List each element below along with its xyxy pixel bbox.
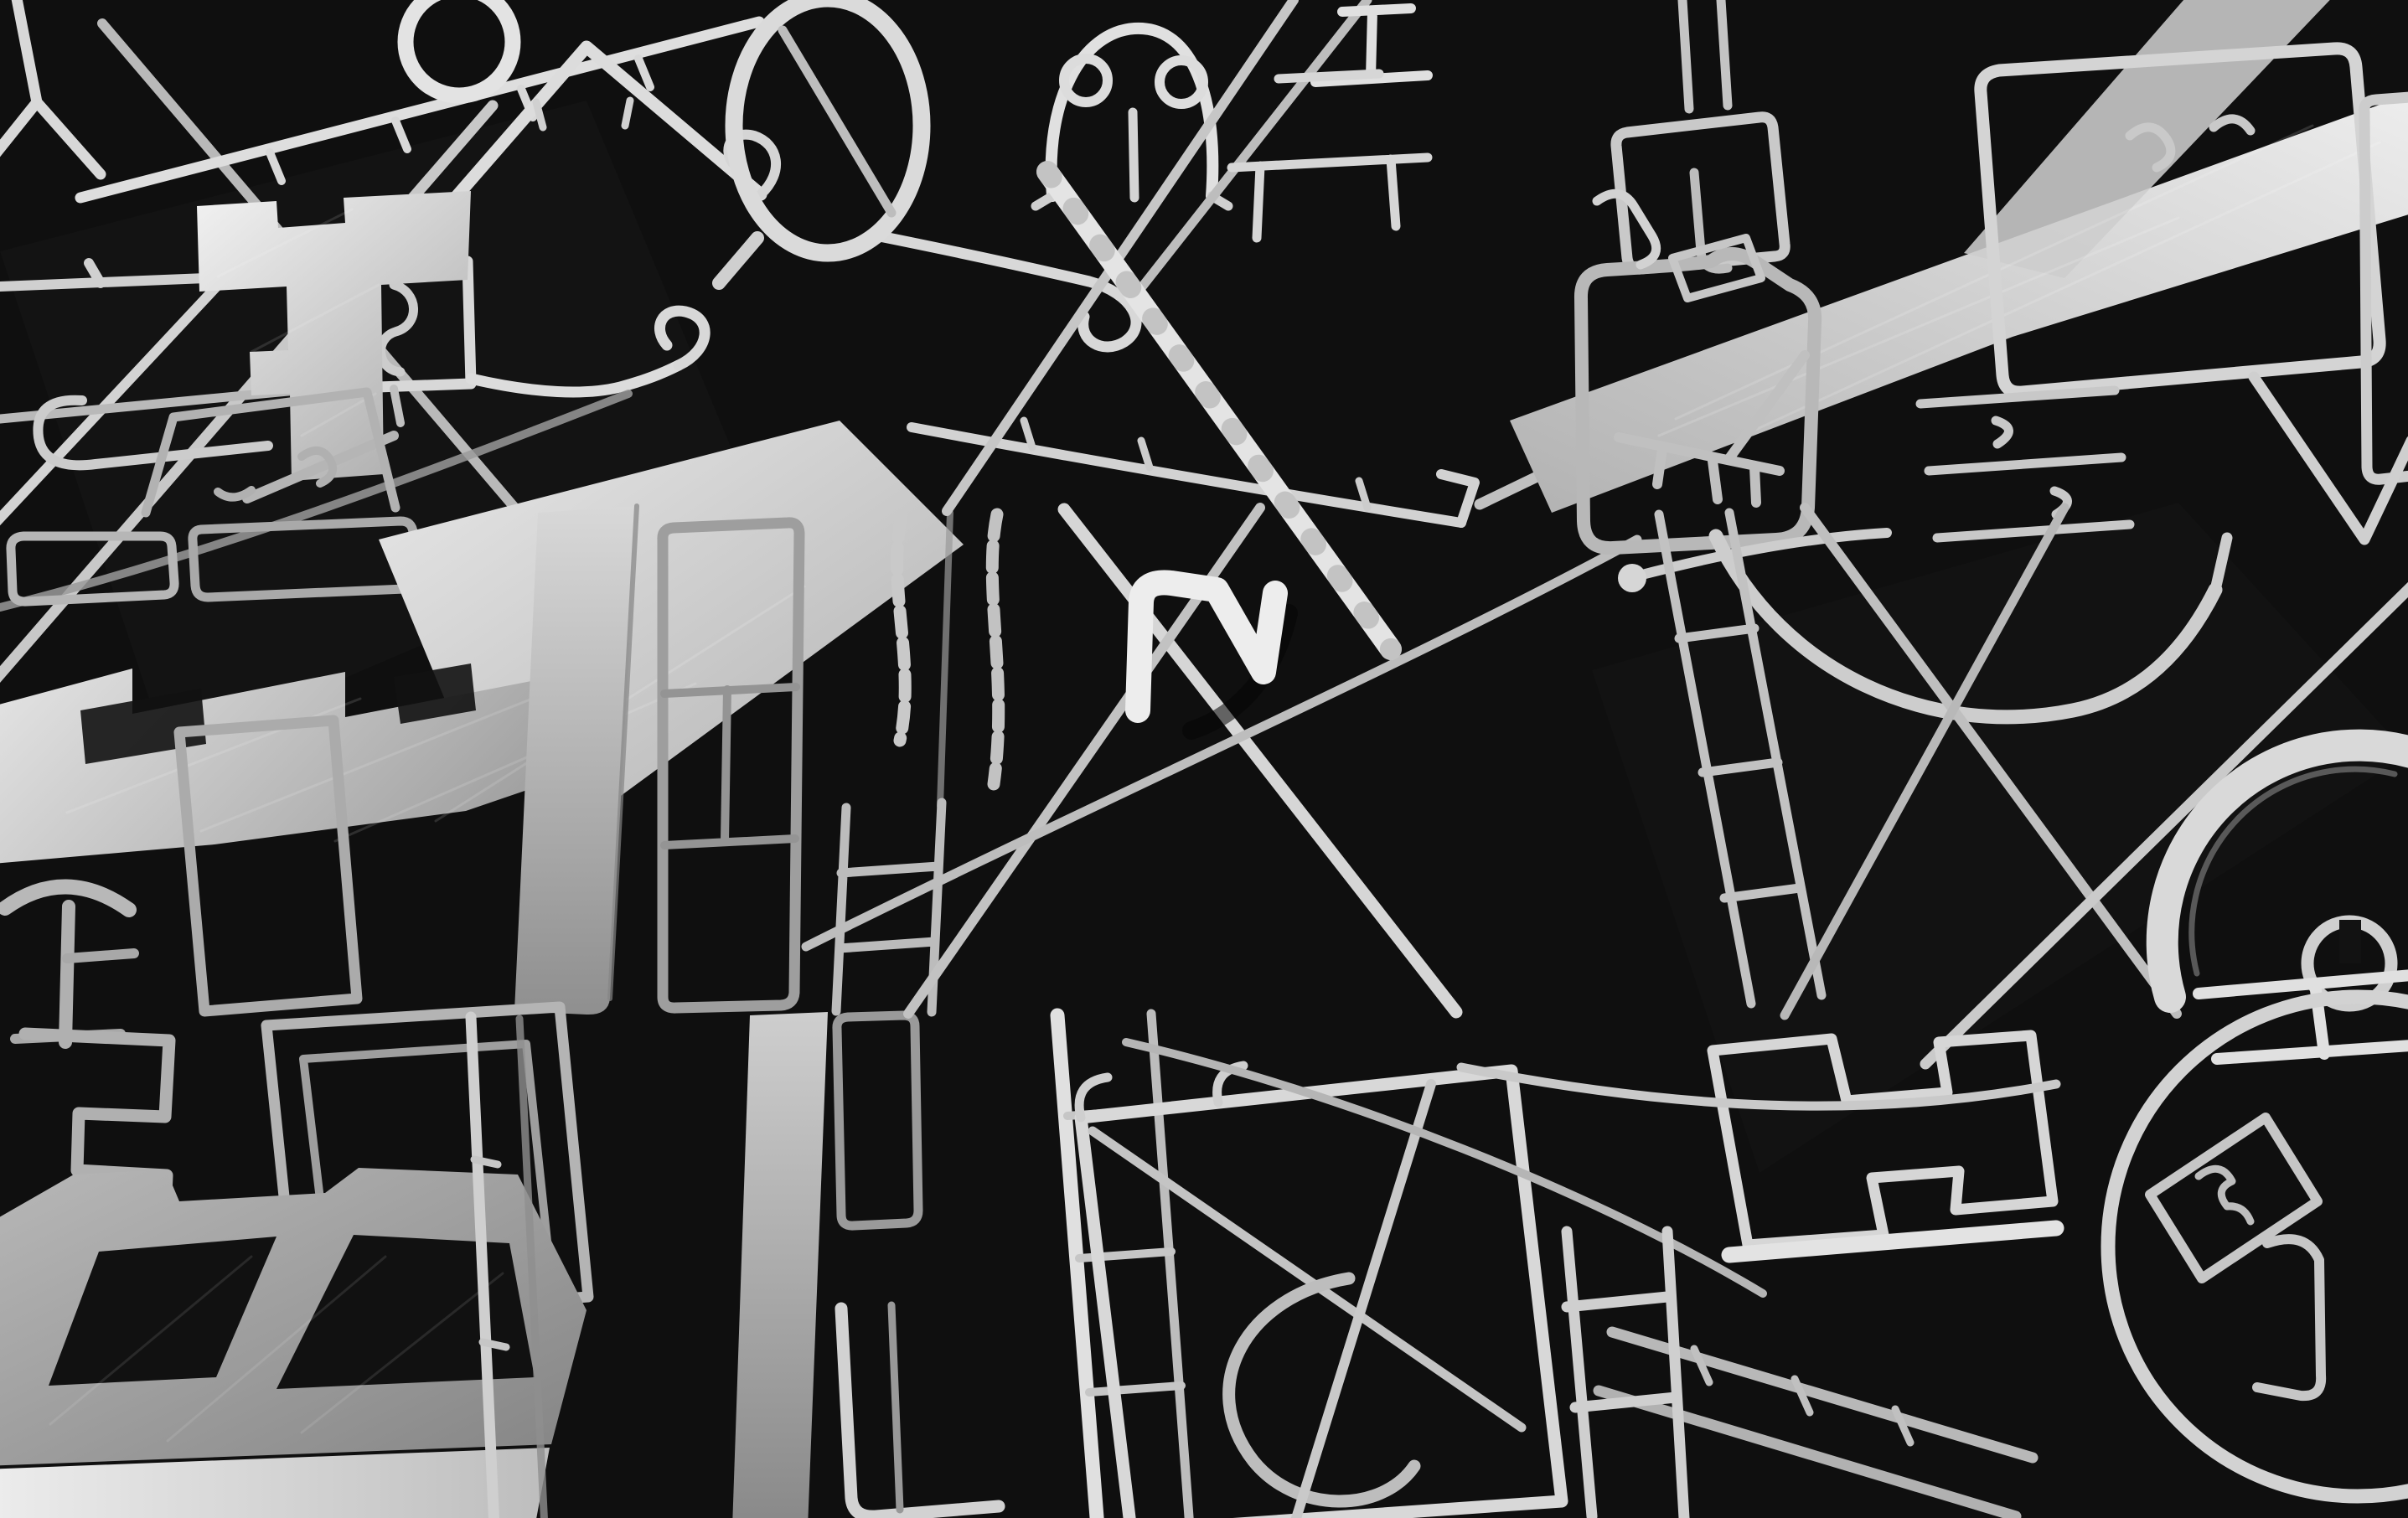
frog-stem	[1133, 112, 1134, 198]
photo-stage	[0, 0, 2408, 1518]
ball-end	[1618, 564, 1646, 592]
mushroom-stem	[65, 906, 69, 1042]
serrated-strip-2	[992, 514, 998, 784]
keyhole-slot	[2339, 920, 2361, 963]
aluminum-extrusions-photo	[0, 0, 2408, 1518]
